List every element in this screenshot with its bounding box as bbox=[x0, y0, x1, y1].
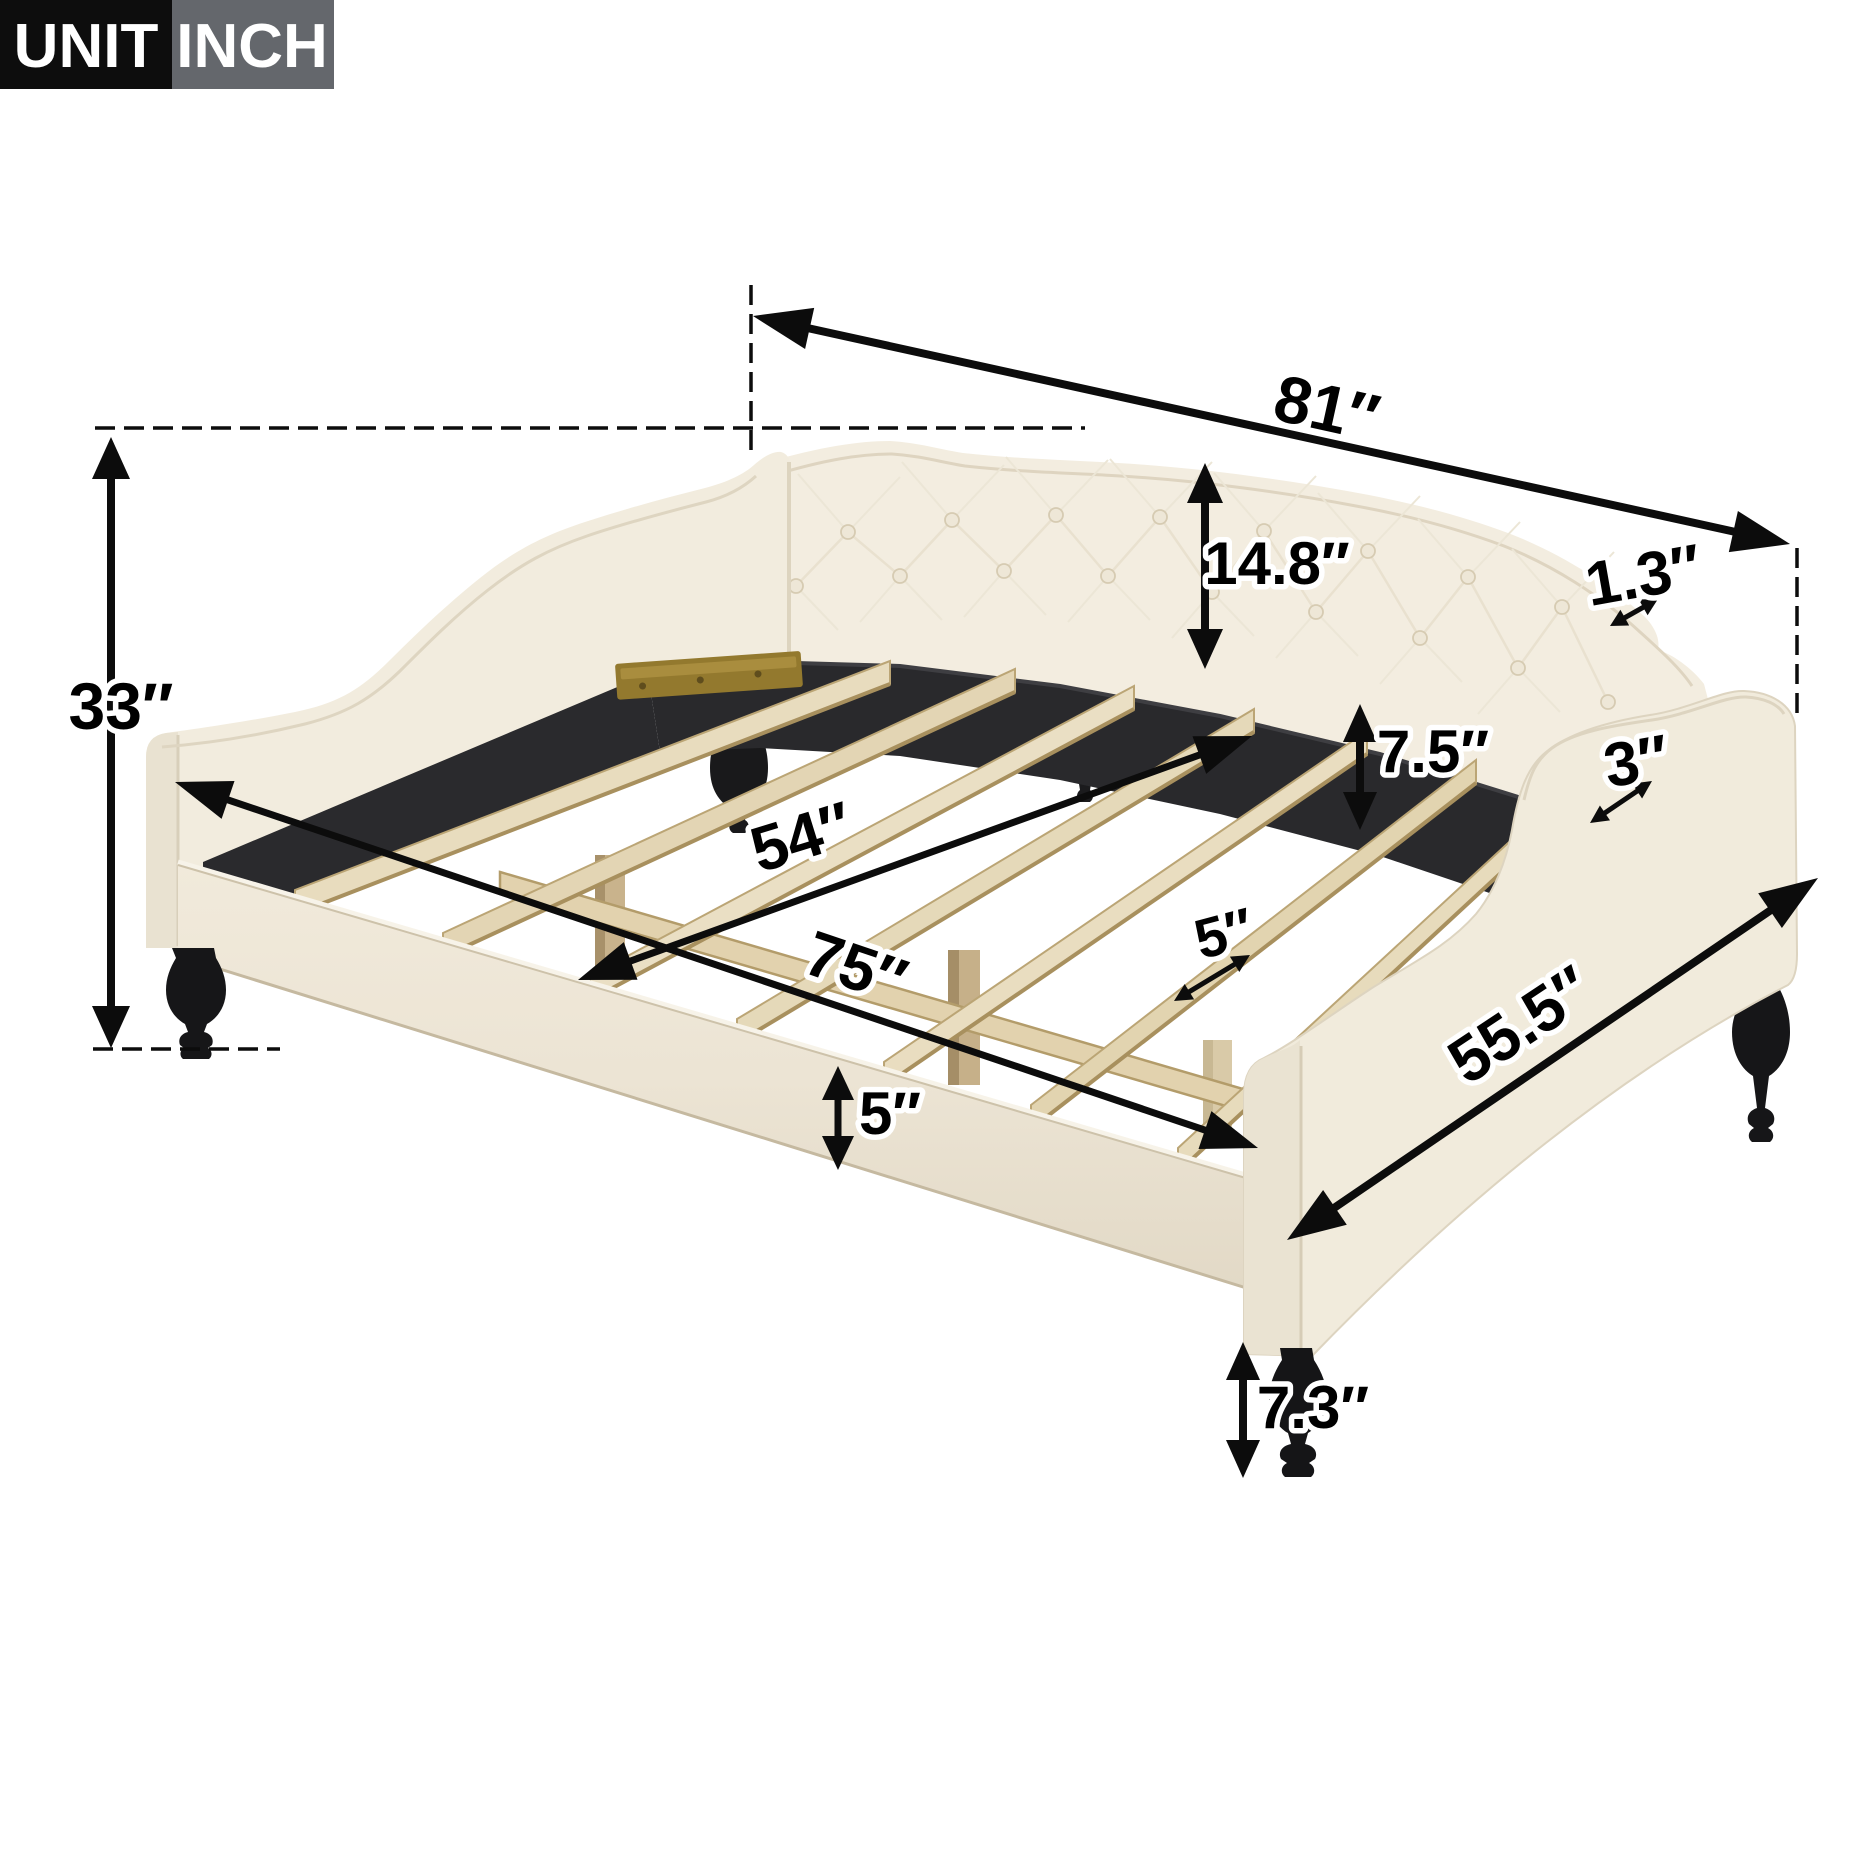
svg-text:3″: 3″ bbox=[1599, 722, 1674, 801]
svg-text:14.8″: 14.8″ bbox=[1204, 530, 1350, 597]
svg-text:33″: 33″ bbox=[68, 669, 173, 743]
svg-text:UNIT: UNIT bbox=[14, 12, 159, 81]
svg-text:7.3″: 7.3″ bbox=[1257, 1374, 1369, 1441]
svg-text:7.5″: 7.5″ bbox=[1377, 718, 1489, 785]
svg-text:5″: 5″ bbox=[859, 1080, 921, 1147]
svg-text:INCH: INCH bbox=[176, 12, 328, 81]
